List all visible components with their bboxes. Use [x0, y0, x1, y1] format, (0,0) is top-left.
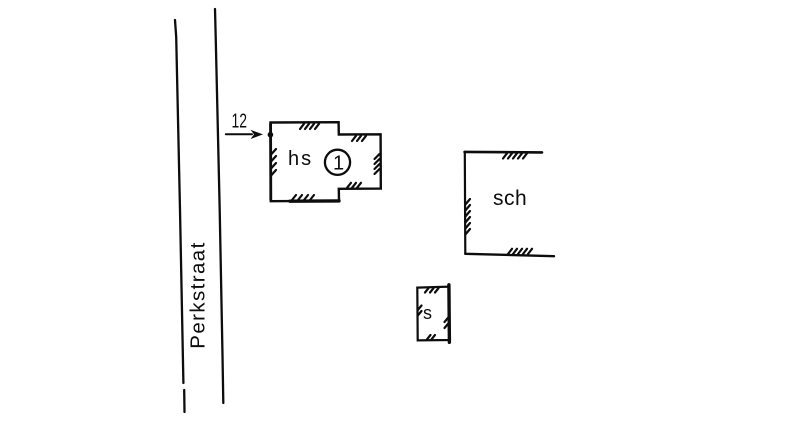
svg-text:Perkstraat: Perkstraat [187, 241, 210, 348]
svg-text:1: 1 [333, 153, 344, 175]
svg-text:s: s [423, 303, 432, 323]
svg-text:12: 12 [232, 111, 248, 133]
svg-text:sch: sch [493, 187, 527, 210]
svg-text:hs: hs [288, 148, 313, 170]
